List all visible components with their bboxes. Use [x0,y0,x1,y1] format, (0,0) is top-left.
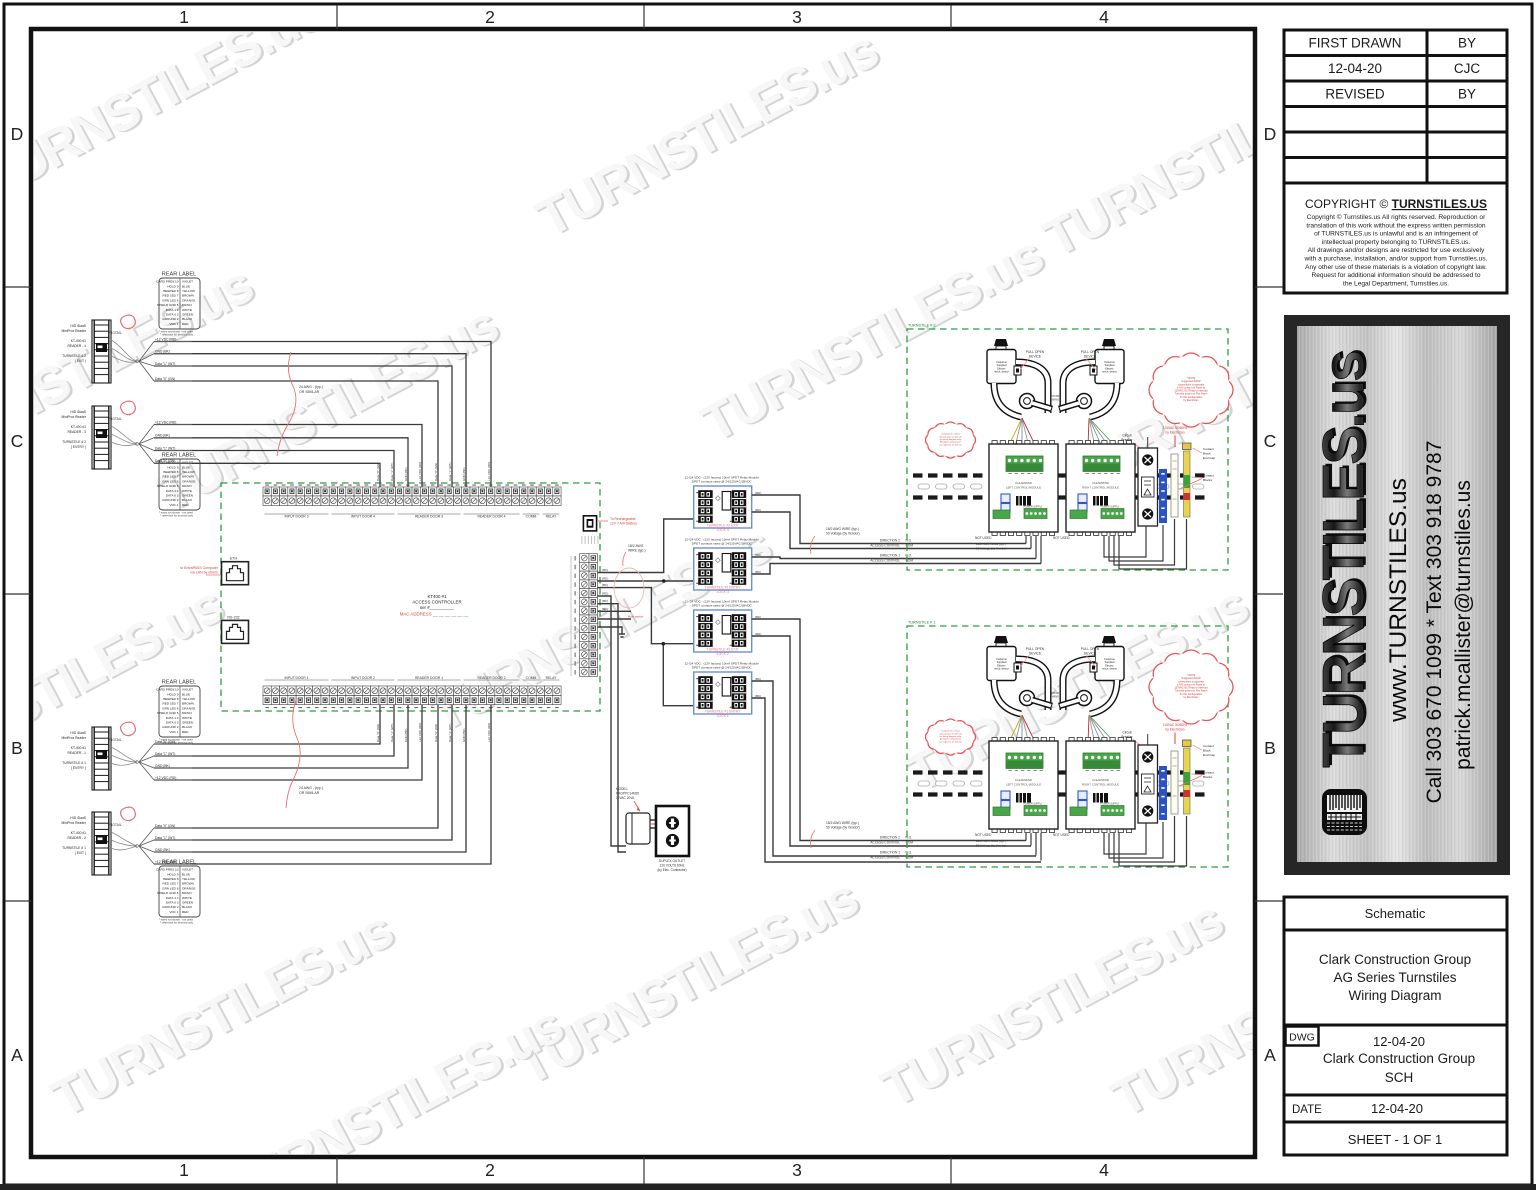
svg-text:115VAC 50/60Hz: 115VAC 50/60Hz [1163,426,1188,430]
svg-text:GND (BK): GND (BK) [155,350,170,354]
svg-text:Data "1" (WT): Data "1" (WT) [155,446,175,450]
svg-text:CLEARMIND: CLEARMIND [1015,778,1032,782]
svg-text:CLEARMIND: CLEARMIND [1015,481,1032,485]
svg-text:SHIELD GND 5: SHIELD GND 5 [157,484,179,488]
svg-text:HOLD 9: HOLD 9 [167,692,178,696]
svg-text:A: A [1264,1045,1276,1065]
svg-text:GND (BK): GND (BK) [404,467,408,481]
svg-text:Blocks: Blocks [1203,478,1213,482]
svg-text:( ENTRY ): ( ENTRY ) [71,445,86,449]
svg-text:VIOLET: VIOLET [182,688,193,692]
svg-text:SHIELD GND 5: SHIELD GND 5 [157,303,179,307]
svg-text:BLUE: BLUE [182,692,190,696]
svg-text:ETH: ETH [230,557,238,561]
svg-text:POWER SUPPLY: POWER SUPPLY [1101,506,1120,509]
svg-text:by Electrician: by Electrician [1166,728,1185,732]
svg-text:RED: RED [182,730,189,734]
svg-text:MiniProx Reader: MiniProx Reader [61,329,86,333]
svg-text:18/2 AWG WIRE (typ.): 18/2 AWG WIRE (typ.) [826,527,859,531]
svg-text:BEEPER 8: BEEPER 8 [163,697,178,701]
svg-text:PULL OPEN: PULL OPEN [1026,647,1045,651]
svg-text:TURNSTILE # 1: TURNSTILE # 1 [62,761,86,765]
svg-text:HID iDaaS: HID iDaaS [70,410,86,414]
svg-text:HID iDaaS: HID iDaaS [70,816,86,820]
svg-text:MiniProx Reader: MiniProx Reader [61,415,86,419]
svg-text:COPYRIGHT © TURNSTILES.US: COPYRIGHT © TURNSTILES.US [1305,197,1487,211]
svg-text:TURNSTILE # 2: TURNSTILE # 2 [62,354,86,358]
svg-text:ACCESS CONTROL: ACCESS CONTROL [870,841,900,845]
svg-text:2: 2 [485,1160,495,1180]
svg-text:LOCK 1: LOCK 1 [717,714,729,718]
svg-text:DPDT contacts rated @ 24/125VA: DPDT contacts rated @ 24/125VAC/28VDC [692,542,753,546]
svg-text:INPUT DOOR 2: INPUT DOOR 2 [351,676,375,680]
svg-text:ACCESS CONTROLLER: ACCESS CONTROLLER [412,600,461,605]
svg-text:Data "0" (GN): Data "0" (GN) [376,463,380,481]
svg-text:(BK): (BK) [755,570,761,574]
svg-text:COMM: COMM [526,514,537,518]
svg-text:KT-400 #1: KT-400 #1 [71,425,86,429]
svg-text:TURNSTILE #2 EXIT: TURNSTILE #2 EXIT [707,524,739,528]
svg-text:YELLOW: YELLOW [182,697,195,701]
svg-text:BEEPER 8: BEEPER 8 [163,289,178,293]
svg-text:GROUND 2: GROUND 2 [162,317,179,321]
svg-text:RED LED 7: RED LED 7 [163,294,179,298]
svg-text:SHEET - 1 OF 1: SHEET - 1 OF 1 [1348,1132,1442,1147]
svg-text:mech. device: mech. device [994,668,1009,671]
svg-text:* reference for terminal only: * reference for terminal only [160,514,194,518]
svg-text:DATA 0 3: DATA 0 3 [166,901,179,905]
svg-text:Contact: Contact [1203,771,1214,775]
svg-text:POWER SUPPLY: POWER SUPPLY [1024,506,1043,509]
svg-text:by Electrician: by Electrician [1166,431,1185,435]
svg-text:24 AWG - (typ.): 24 AWG - (typ.) [299,385,323,389]
svg-text:TURNSTILE # 2: TURNSTILE # 2 [908,324,935,328]
svg-text:18/2 AWG WIRE (typ.): 18/2 AWG WIRE (typ.) [826,821,859,825]
svg-text:spread apart on Din rail: spread apart on Din rail [939,732,962,735]
svg-text:Host switch: Host switch [628,615,644,619]
svg-text:Any other use of these materia: Any other use of these materials is a vi… [1305,264,1487,271]
svg-text:HID iDaaS: HID iDaaS [70,731,86,735]
svg-text:Schematic: Schematic [1365,906,1426,921]
svg-text:DPDT contacts rated @ 24/125VA: DPDT contacts rated @ 24/125VAC/28VDC [692,666,753,670]
svg-text:RED: RED [182,503,189,507]
svg-text:INPUT DOOR 1: INPUT DOOR 1 [284,676,308,680]
svg-text:DRAIN: DRAIN [182,711,192,715]
svg-text:B: B [1264,738,1276,758]
svg-text:NOT USED: NOT USED [1053,536,1070,540]
svg-text:READER DOOR 2: READER DOOR 2 [477,676,505,680]
svg-text:mech. device: mech. device [1102,371,1117,374]
svg-text:intellectual property belongin: intellectual property belonging to TURNS… [1322,239,1470,246]
svg-text:BROWN: BROWN [182,294,194,298]
svg-text:Circuit: Circuit [1122,434,1131,438]
svg-text:PIGTAIL: PIGTAIL [109,417,122,421]
svg-text:RS-232: RS-232 [227,615,239,619]
svg-text:WING: WING [1052,398,1059,402]
svg-text:TURNSTILE #1 EXIT: TURNSTILE #1 EXIT [707,648,739,652]
svg-text:INPUT DOOR 4: INPUT DOOR 4 [351,514,375,518]
svg-text:are adjacent on Din rail: are adjacent on Din rail [939,740,962,743]
svg-text:HOLD 9: HOLD 9 [167,872,178,876]
svg-text:BROWN: BROWN [182,702,194,706]
svg-text:to EntraPASS Computer: to EntraPASS Computer [180,566,219,570]
svg-text:BLACK: BLACK [182,317,193,321]
svg-text:DATE: DATE [1292,1104,1322,1116]
svg-text:DUPLEX OUTLET: DUPLEX OUTLET [659,859,685,863]
svg-text:( EXIT ): ( EXIT ) [75,359,86,363]
svg-text:18/2 AWG: 18/2 AWG [628,544,644,548]
svg-text:1: 1 [179,1160,189,1180]
svg-text:Data "0" (GN): Data "0" (GN) [155,824,175,828]
svg-text:NOT USED: NOT USED [975,833,992,837]
svg-text:12-04-20: 12-04-20 [1373,1034,1425,1049]
svg-text:BROWN: BROWN [182,882,194,886]
svg-text:GND (BK): GND (BK) [404,728,408,742]
svg-text:GRN LED 6: GRN LED 6 [162,706,179,710]
svg-text:READER DOOR 4: READER DOOR 4 [477,514,505,518]
svg-text:115VAC 50/60Hz: 115VAC 50/60Hz [1163,723,1188,727]
svg-text:(BK): (BK) [755,508,761,512]
svg-text:LEFT CONTROL MODULE: LEFT CONTROL MODULE [1006,783,1041,787]
svg-text:YELLOW: YELLOW [182,877,195,881]
svg-text:(BK): (BK) [602,599,608,603]
svg-text:Data "1" (WT): Data "1" (WT) [448,724,452,742]
svg-text:GND (BK): GND (BK) [155,764,170,768]
svg-text:SHIELD GND 5: SHIELD GND 5 [157,711,179,715]
svg-text:GROUND 2: GROUND 2 [162,905,179,909]
svg-text:Components shown: Components shown [941,433,961,436]
svg-text:(BK): (BK) [755,677,761,681]
svg-text:OR SIMILAR: OR SIMILAR [299,390,320,394]
svg-text:ACCESS CONTROL: ACCESS CONTROL [870,544,900,548]
svg-text:REAR LABEL: REAR LABEL [162,453,197,459]
svg-text:CJC: CJC [1454,61,1480,76]
svg-text:DPDT contacts rated @ 24/125VA: DPDT contacts rated @ 24/125VAC/28VDC [692,604,753,608]
svg-text:RED LED 7: RED LED 7 [163,882,179,886]
svg-text:Request for additional informa: Request for additional information shoul… [1312,272,1481,279]
svg-text:mech. device: mech. device [994,371,1009,374]
svg-text:50 Voltage (by Vendor): 50 Voltage (by Vendor) [826,826,860,830]
svg-text:BLACK: BLACK [182,905,193,909]
svg-text:18/2 AWG WIRE (typ.): 18/2 AWG WIRE (typ.) [976,839,1006,843]
svg-text:Data "1" (WT): Data "1" (WT) [390,724,394,742]
svg-text:(RD): (RD) [755,553,761,557]
svg-text:D: D [1264,124,1277,144]
svg-text:4: 4 [1099,1160,1109,1180]
svg-text:RED LED 7: RED LED 7 [163,475,179,479]
svg-text:Data "0" (GN): Data "0" (GN) [434,724,438,742]
svg-text:ACCESS CONTROL: ACCESS CONTROL [870,856,900,860]
svg-text:18/2 AWG WIRE (typ.): 18/2 AWG WIRE (typ.) [976,542,1006,546]
svg-text:TURNSTILE #2 ENTRY: TURNSTILE #2 ENTRY [705,586,742,590]
svg-text:PULL OPEN: PULL OPEN [1026,350,1045,354]
svg-text:Clark Construction Group: Clark Construction Group [1323,1051,1475,1066]
svg-text:Contact: Contact [1203,744,1214,748]
svg-text:BROWN: BROWN [182,475,194,479]
svg-text:Data "0" (GN): Data "0" (GN) [376,724,380,742]
svg-text:SHIELD GND 5: SHIELD GND 5 [157,891,179,895]
svg-text:FIRST DRAWN: FIRST DRAWN [1309,36,1402,51]
svg-text:GREEN: GREEN [182,721,193,725]
svg-text:DEVICE: DEVICE [1084,355,1097,359]
svg-text:ORANGE: ORANGE [182,706,195,710]
svg-text:VIOLET: VIOLET [182,461,193,465]
svg-text:Data "1" (WT): Data "1" (WT) [155,836,175,840]
svg-text:12-04-20: 12-04-20 [1371,1101,1423,1116]
svg-text:WHITE: WHITE [182,308,192,312]
svg-text:Contact: Contact [1203,447,1214,451]
svg-text:GRN LED 6: GRN LED 6 [162,298,179,302]
svg-text:VDC 1: VDC 1 [169,910,178,914]
svg-text:Components shown: Components shown [941,730,961,733]
svg-text:Data "1" (WT): Data "1" (WT) [448,463,452,481]
svg-text:* reference for terminal only: * reference for terminal only [160,333,194,337]
svg-text:End Cap: End Cap [1203,753,1215,757]
svg-text:HOLD 9: HOLD 9 [167,284,178,288]
svg-text:WIRE (typ.): WIRE (typ.) [628,549,646,553]
svg-text:READER - 3: READER - 3 [67,430,86,434]
svg-text:VDC 1: VDC 1 [169,322,178,326]
svg-text:LOCK 4: LOCK 4 [717,528,729,532]
svg-text:+12 VDC (RD): +12 VDC (RD) [155,337,176,341]
svg-text:for wiring diagram only.: for wiring diagram only. [940,736,962,738]
svg-text:GREEN: GREEN [182,313,193,317]
svg-text:BY: BY [1458,36,1476,51]
svg-text:VIOLET: VIOLET [182,280,193,284]
svg-text:by Electrician: by Electrician [1184,399,1199,402]
svg-text:(RD): (RD) [755,632,761,636]
svg-text:CARD PRES 10: CARD PRES 10 [156,280,179,284]
svg-text:patrick.mcallister@turnstiles.: patrick.mcallister@turnstiles.us [1452,480,1475,770]
svg-text:CARD PRES 10: CARD PRES 10 [156,688,179,692]
svg-text:WHITE: WHITE [182,896,192,900]
svg-text:BLUE: BLUE [182,872,190,876]
svg-text:COMM: COMM [526,676,537,680]
svg-text:NOT USED: NOT USED [975,536,992,540]
svg-text:PIGTAIL: PIGTAIL [109,823,122,827]
svg-text:(RD): (RD) [602,577,608,581]
svg-text:All drawings and/or designs ar: All drawings and/or designs are restrict… [1308,247,1485,254]
svg-text:GRN LED 6: GRN LED 6 [162,479,179,483]
svg-text:DIRECTION 2: DIRECTION 2 [880,539,900,543]
svg-text:KT-400 #1: KT-400 #1 [71,831,86,835]
svg-text:DATA 0 3: DATA 0 3 [166,313,179,317]
svg-text:translation of this work witho: translation of this work without the exp… [1306,222,1486,229]
svg-text:NOT USED: NOT USED [1053,833,1070,837]
svg-text:Copyright © Turnstiles.us All: Copyright © Turnstiles.us All rights res… [1307,213,1486,221]
svg-text:GRN LED 6: GRN LED 6 [162,886,179,890]
svg-text:WHITE: WHITE [182,716,192,720]
svg-text:AG Series Turnstiles: AG Series Turnstiles [1333,970,1456,985]
svg-text:ORANGE: ORANGE [182,886,195,890]
svg-text:MODEL:: MODEL: [616,787,628,791]
svg-text:DATA 0 3: DATA 0 3 [166,494,179,498]
svg-text:* reference for terminal only: * reference for terminal only [160,921,194,925]
svg-text:WHITE: WHITE [182,489,192,493]
svg-text:BLACK: BLACK [182,725,193,729]
svg-text:DIRECTION 2: DIRECTION 2 [880,836,900,840]
svg-text:Clark Construction Group: Clark Construction Group [1319,952,1471,967]
svg-text:KT-400 #1: KT-400 #1 [71,746,86,750]
svg-text:YELLOW: YELLOW [182,289,195,293]
svg-text:3: 3 [792,1160,802,1180]
svg-text:GREEN: GREEN [182,901,193,905]
svg-text:RIGHT CONTROL MODULE: RIGHT CONTROL MODULE [1082,783,1119,787]
svg-text:MAC ADDRESS __ __ __ __ __ __: MAC ADDRESS __ __ __ __ __ __ [400,612,469,617]
svg-text:CLEARMIND: CLEARMIND [1092,778,1109,782]
svg-text:YELLOW: YELLOW [182,470,195,474]
svg-text:RELAY: RELAY [546,514,558,518]
svg-text:A: A [11,1045,23,1065]
svg-text:+12 VDC (RD): +12 VDC (RD) [155,776,176,780]
svg-text:REAR LABEL: REAR LABEL [162,680,197,686]
svg-text:DRAIN: DRAIN [182,891,192,895]
svg-text:To Rechargeable: To Rechargeable [610,517,636,521]
svg-text:Data "0" (GN): Data "0" (GN) [155,740,175,744]
svg-text:DEVICE: DEVICE [1084,652,1097,656]
svg-text:TURNSTILES.us: TURNSTILES.us [1312,352,1377,768]
svg-text:DIRECTION 1: DIRECTION 1 [880,851,900,855]
svg-text:KT400 #1: KT400 #1 [427,594,447,599]
svg-text:are adjacent on Din rail: are adjacent on Din rail [939,443,962,446]
svg-text:OR SIMILAR: OR SIMILAR [299,791,320,795]
svg-text:READER DOOR 3: READER DOOR 3 [415,514,443,518]
svg-text:GREEN: GREEN [182,494,193,498]
svg-text:RXOPPC14M20: RXOPPC14M20 [616,792,639,796]
svg-text:+12 VDC (RD): +12 VDC (RD) [487,723,491,742]
svg-text:+12 VDC (RD): +12 VDC (RD) [418,462,422,481]
svg-text:DRAIN: DRAIN [182,484,192,488]
svg-text:GND (BK): GND (BK) [462,728,466,742]
svg-text:50 Voltage (by Vendor): 50 Voltage (by Vendor) [976,844,1007,848]
svg-text:3: 3 [792,7,802,27]
svg-text:ser #__________: ser #__________ [420,605,455,610]
svg-text:TURNSTILE # 2: TURNSTILE # 2 [62,440,86,444]
svg-text:4: 4 [1099,7,1109,27]
svg-text:ACCESS CONTROL: ACCESS CONTROL [870,559,900,563]
svg-text:PULL OPEN: PULL OPEN [1081,647,1100,651]
svg-text:VIOLET: VIOLET [182,868,193,872]
svg-text:( ENTRY ): ( ENTRY ) [71,766,86,770]
svg-text:DATA 1 4: DATA 1 4 [166,716,179,720]
svg-text:(BK): (BK) [755,615,761,619]
svg-text:mech. device: mech. device [1102,668,1117,671]
svg-text:GND (BK): GND (BK) [155,434,170,438]
svg-text:GND (BK): GND (BK) [462,467,466,481]
svg-text:POWER SUPPLY: POWER SUPPLY [1024,803,1043,806]
svg-text:with a purchase, installation,: with a purchase, installation, and/or su… [1304,256,1488,263]
svg-text:BLUE: BLUE [182,284,190,288]
svg-text:BY: BY [1458,87,1476,102]
svg-text:DRAIN: DRAIN [182,303,192,307]
svg-text:via LAN by others: via LAN by others [190,571,218,575]
svg-text:DIRECTION 1: DIRECTION 1 [880,554,900,558]
svg-text:Data "0" (GN): Data "0" (GN) [434,463,438,481]
svg-text:PIGTAIL: PIGTAIL [109,331,122,335]
svg-text:(by Elec. Contractor): (by Elec. Contractor) [657,868,686,872]
svg-text:C: C [1264,431,1277,451]
svg-text:POWER SUPPLY: POWER SUPPLY [1101,803,1120,806]
svg-text:LEFT CONTROL MODULE: LEFT CONTROL MODULE [1006,486,1041,490]
svg-text:Blocks: Blocks [1203,775,1213,779]
svg-text:by Electrician: by Electrician [1184,696,1199,699]
svg-text:12VAC 20VA: 12VAC 20VA [616,796,635,800]
svg-text:(BK): (BK) [602,568,608,572]
svg-text:Call 303 670 1099 * Text 303 9: Call 303 670 1099 * Text 303 918 9787 [1423,441,1446,804]
svg-text:DWG: DWG [1289,1032,1315,1044]
svg-text:(BK): (BK) [602,607,608,611]
svg-text:GROUND 2: GROUND 2 [162,725,179,729]
svg-text:All adjust components: All adjust components [940,441,961,444]
svg-text:Wiring Diagram: Wiring Diagram [1348,988,1441,1003]
svg-text:Contact: Contact [1203,474,1214,478]
svg-text:+12 VDC (RD): +12 VDC (RD) [155,420,176,424]
svg-text:HOLD 9: HOLD 9 [167,465,178,469]
svg-text:Data "1" (WT): Data "1" (WT) [155,752,175,756]
svg-text:DATA 0 3: DATA 0 3 [166,721,179,725]
svg-text:CARD PRES 10: CARD PRES 10 [156,868,179,872]
svg-text:VDC 1: VDC 1 [169,503,178,507]
svg-text:SCH: SCH [1385,1070,1414,1085]
svg-text:RED: RED [182,910,189,914]
svg-text:ROTARY: ROTARY [1050,691,1061,695]
svg-text:DPDT contacts rated @ 24/125VA: DPDT contacts rated @ 24/125VAC/28VDC [692,480,753,484]
svg-text:All adjust components: All adjust components [940,738,961,741]
svg-text:DATA 1 4: DATA 1 4 [166,896,179,900]
svg-text:(RD): (RD) [755,491,761,495]
svg-text:2: 2 [485,7,495,27]
svg-text:TURNSTILE #1 ENTRY: TURNSTILE #1 ENTRY [705,710,742,714]
svg-text:DEVICE: DEVICE [1029,355,1042,359]
svg-text:RIGHT CONTROL MODULE: RIGHT CONTROL MODULE [1082,486,1119,490]
svg-text:Block: Block [1203,749,1211,753]
svg-text:LOCK 2: LOCK 2 [717,652,729,656]
svg-text:DATA 1 4: DATA 1 4 [166,489,179,493]
svg-text:ORANGE: ORANGE [182,479,195,483]
svg-text:ROTARY: ROTARY [1050,394,1061,398]
svg-text:BEEPER 8: BEEPER 8 [163,470,178,474]
svg-text:LOCK 3: LOCK 3 [717,590,729,594]
svg-text:(BK): (BK) [755,694,761,698]
svg-text:B: B [11,738,23,758]
svg-text:(RD): (RD) [602,592,608,596]
svg-text:DEVICE: DEVICE [1029,652,1042,656]
svg-text:HID iDaaS: HID iDaaS [70,324,86,328]
svg-text:+12 VDC (RD): +12 VDC (RD) [155,860,176,864]
svg-text:BLUE: BLUE [182,465,190,469]
svg-text:PULL OPEN: PULL OPEN [1081,350,1100,354]
svg-text:12V 7 A/H Battery: 12V 7 A/H Battery [610,522,637,526]
svg-text:PIGTAIL: PIGTAIL [109,738,122,742]
svg-text:TURNSTILE # 1: TURNSTILE # 1 [62,846,86,850]
svg-text:Circuit: Circuit [1122,731,1131,735]
svg-text:12-04-20: 12-04-20 [1328,61,1382,76]
svg-text:24 AWG - (typ.): 24 AWG - (typ.) [299,786,323,790]
svg-text:WING: WING [1052,695,1059,699]
svg-text:REAR LABEL: REAR LABEL [162,272,197,278]
svg-text:ORANGE: ORANGE [182,298,195,302]
svg-text:for wiring diagram only.: for wiring diagram only. [940,439,962,441]
svg-text:www.TURNSTILES.us: www.TURNSTILES.us [1385,478,1412,723]
svg-text:TURNSTILE # 1: TURNSTILE # 1 [908,621,935,625]
svg-text:RELAY: RELAY [546,676,558,680]
svg-text:50 Voltage (by Vendor): 50 Voltage (by Vendor) [826,532,860,536]
svg-text:READER DOOR 1: READER DOOR 1 [415,676,443,680]
svg-text:(BK): (BK) [602,583,608,587]
svg-text:spread apart on Din rail: spread apart on Din rail [939,435,962,438]
svg-text:RED: RED [182,322,189,326]
svg-text:120 VOLTS 60Hz: 120 VOLTS 60Hz [660,864,685,868]
